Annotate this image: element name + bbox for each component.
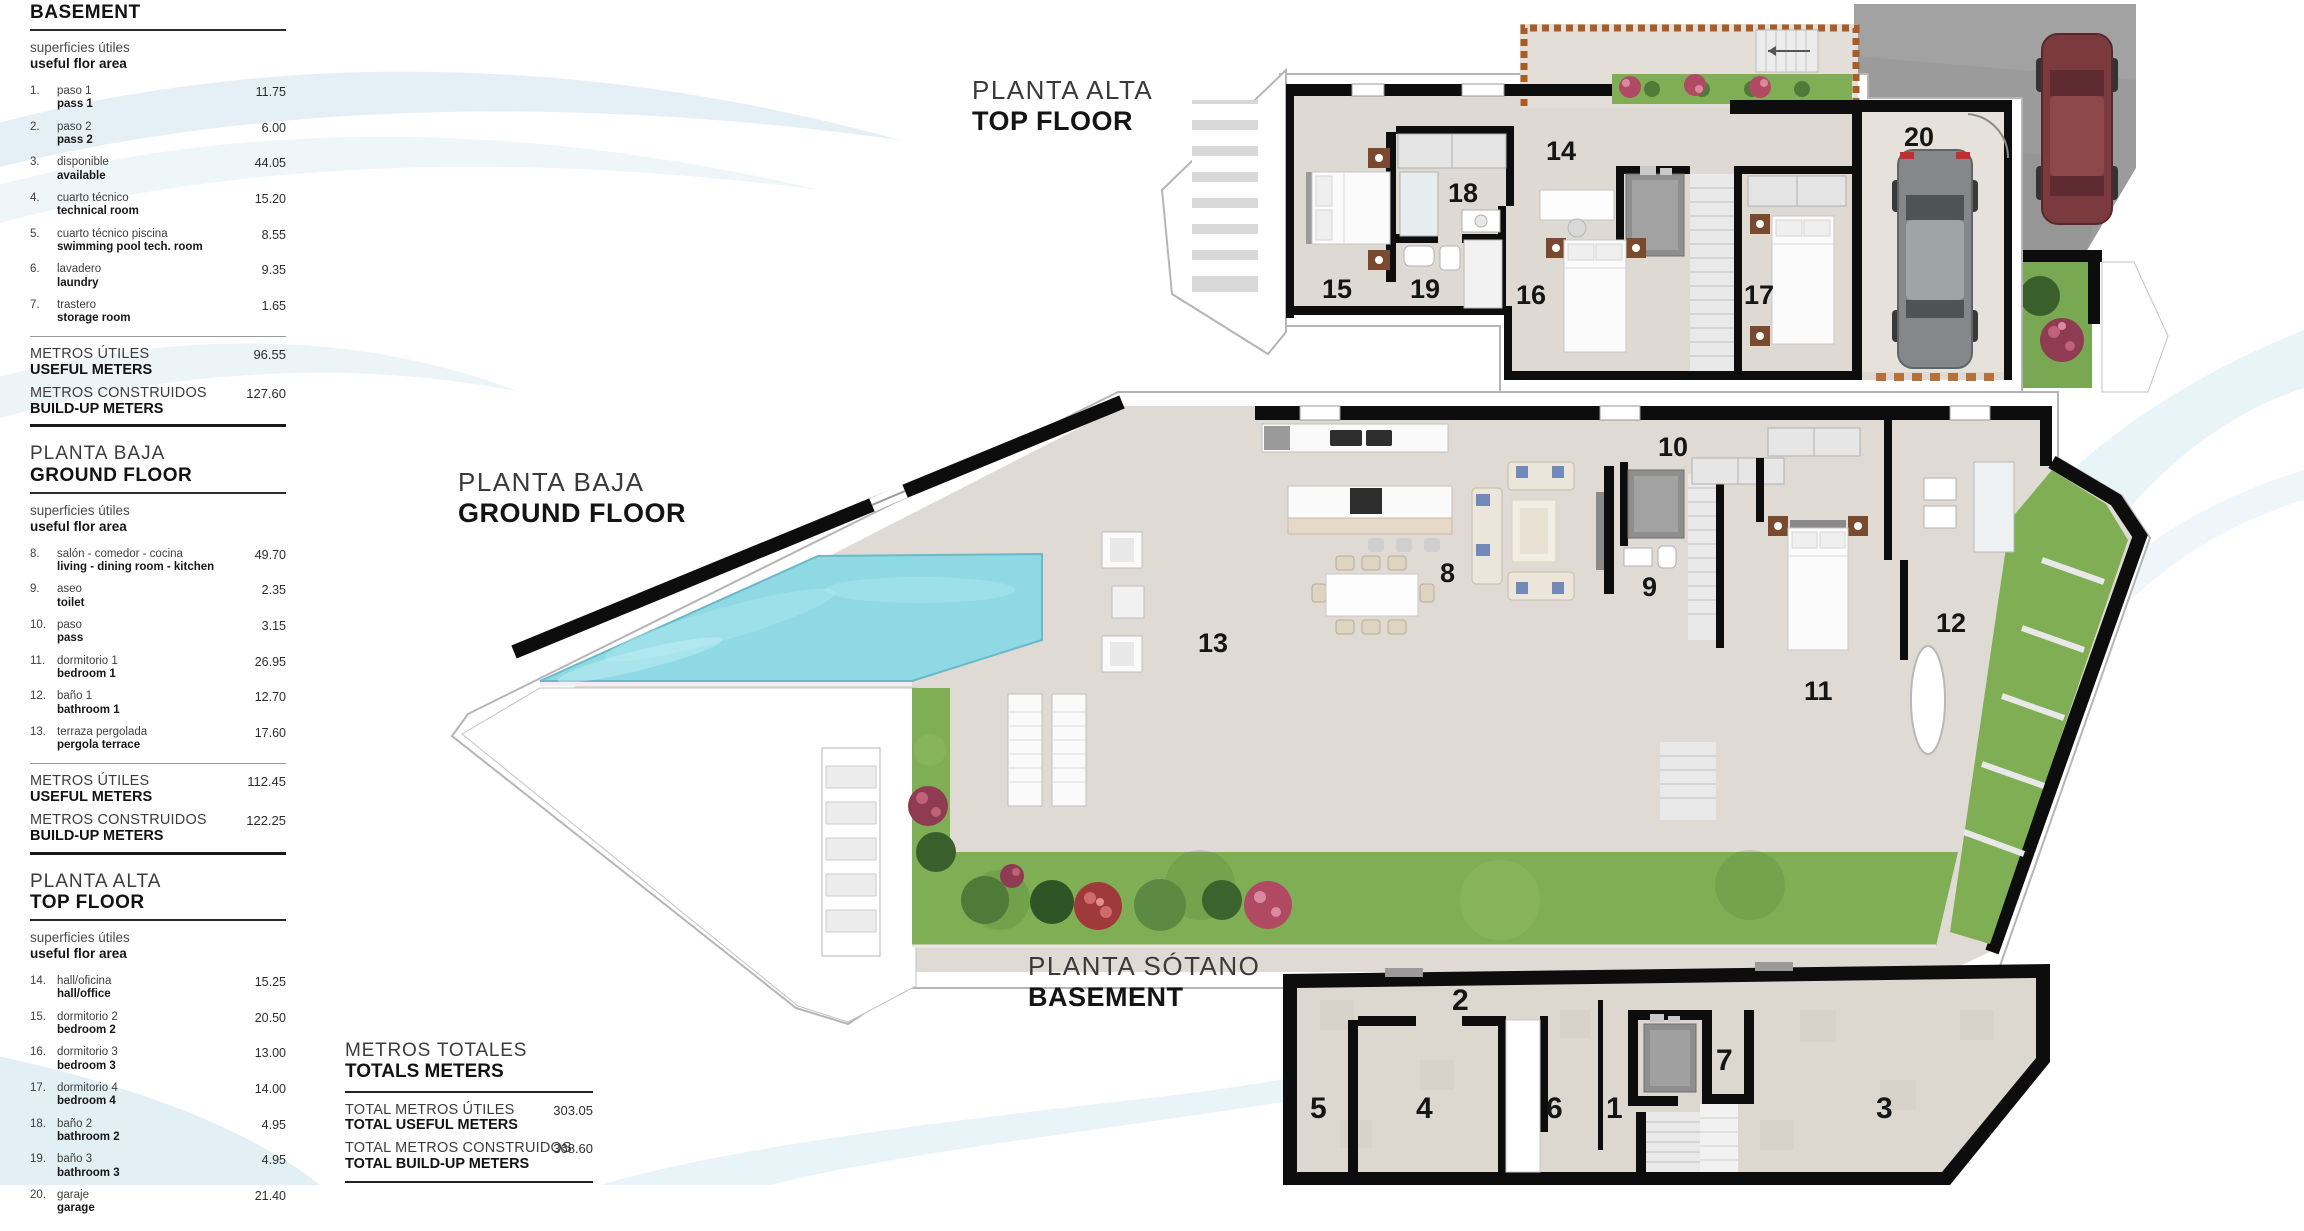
area-row: 3.disponibleavailable44.05 — [30, 156, 286, 183]
sidebar-section-basement: BASEMENT superficies útiles useful flor … — [30, 2, 286, 427]
total-en: TOTAL USEFUL METERS — [345, 1118, 593, 1134]
total-en: BUILD-UP METERS — [30, 829, 286, 845]
row-en: laundry — [57, 277, 230, 290]
row-es: baño 1 — [57, 690, 230, 703]
room-label-13: 13 — [1198, 628, 1228, 658]
ground-floor-title: PLANTA BAJA GROUND FLOOR — [458, 468, 686, 529]
section-heading-es: PLANTA ALTA — [30, 871, 286, 892]
area-row: 8.salón - comedor - cocinaliving - dinin… — [30, 548, 286, 575]
stairs — [1690, 174, 1734, 371]
row-es: paso — [57, 619, 230, 632]
sidebar-section-ground-floor: PLANTA BAJA GROUND FLOOR superficies úti… — [30, 443, 286, 854]
room-label-11: 11 — [1804, 676, 1833, 706]
basement-title-es: PLANTA SÓTANO — [1028, 952, 1260, 982]
top-floor-title-en: TOP FLOOR — [972, 106, 1153, 137]
bs-stairs — [1646, 1104, 1738, 1172]
area-row: 16.dormitorio 3bedroom 313.00 — [30, 1046, 286, 1073]
basement-title-en: BASEMENT — [1028, 982, 1260, 1013]
row-value: 11.75 — [256, 85, 286, 99]
room-label-2: 2 — [1452, 984, 1469, 1017]
room-label-5: 5 — [1310, 1092, 1327, 1125]
row-value: 17.60 — [255, 726, 286, 740]
row-en: storage room — [57, 312, 230, 325]
rule — [30, 919, 286, 921]
row-en: available — [57, 170, 230, 183]
row-es: cuarto técnico piscina — [57, 228, 230, 241]
exterior-stairs — [822, 748, 880, 956]
row-value: 21.40 — [255, 1189, 286, 1203]
section-heading-en: TOP FLOOR — [30, 892, 286, 913]
row-value: 44.05 — [255, 156, 286, 170]
rule — [30, 492, 286, 494]
red-car — [2036, 34, 2118, 224]
row-num: 16. — [30, 1046, 46, 1058]
room-label-12: 12 — [1936, 608, 1966, 638]
row-num: 12. — [30, 690, 46, 702]
row-es: hall/oficina — [57, 975, 230, 988]
room-label-18: 18 — [1448, 178, 1478, 208]
subheading-es: superficies útiles — [30, 503, 286, 519]
total-value: 96.55 — [253, 347, 286, 362]
row-en: pass 2 — [57, 134, 230, 147]
total-useful: METROS ÚTILESUSEFUL METERS112.45 — [30, 774, 286, 806]
row-en: pergola terrace — [57, 739, 230, 752]
total-built: METROS CONSTRUIDOSBUILD-UP METERS122.25 — [30, 813, 286, 845]
row-value: 8.55 — [262, 228, 286, 242]
row-en: toilet — [57, 597, 230, 610]
row-value: 15.20 — [255, 192, 286, 206]
row-num: 17. — [30, 1082, 46, 1094]
total-useful: METROS ÚTILESUSEFUL METERS96.55 — [30, 347, 286, 379]
row-es: dormitorio 2 — [57, 1011, 230, 1024]
row-num: 7. — [30, 299, 40, 311]
rule — [30, 336, 286, 337]
section-heading-en: GROUND FLOOR — [30, 465, 286, 486]
row-value: 15.25 — [255, 975, 286, 989]
row-es: paso 1 — [57, 85, 230, 98]
item-list: 1.paso 1pass 111.75 2.paso 2pass 26.00 3… — [30, 85, 286, 326]
area-row: 2.paso 2pass 26.00 — [30, 121, 286, 148]
area-row: 1.paso 1pass 111.75 — [30, 85, 286, 112]
top-floor-title-es: PLANTA ALTA — [972, 76, 1153, 106]
basement-plan: 5 4 2 6 1 7 3 — [1275, 950, 2075, 1185]
row-es: terraza pergolada — [57, 726, 230, 739]
subheading-en: useful flor area — [30, 56, 286, 72]
row-value: 4.95 — [262, 1153, 286, 1167]
room-label-20: 20 — [1904, 122, 1934, 152]
row-num: 10. — [30, 619, 46, 631]
row-en: bathroom 2 — [57, 1131, 230, 1144]
section-heading: BASEMENT — [30, 2, 286, 23]
row-es: dormitorio 1 — [57, 655, 230, 668]
area-row: 11.dormitorio 1bedroom 126.95 — [30, 655, 286, 682]
top-floor-plan: 14 15 16 17 18 19 20 — [1150, 0, 2170, 400]
row-en: pass — [57, 632, 230, 645]
area-row: 9.aseotoilet2.35 — [30, 583, 286, 610]
ground-floor-title-en: GROUND FLOOR — [458, 498, 686, 529]
total-en: USEFUL METERS — [30, 363, 286, 379]
area-row: 5.cuarto técnico piscinaswimming pool te… — [30, 228, 286, 255]
row-value: 14.00 — [255, 1082, 286, 1096]
room-label-1: 1 — [1606, 1092, 1623, 1125]
row-num: 15. — [30, 1011, 46, 1023]
row-value: 20.50 — [255, 1011, 286, 1025]
row-en: hall/office — [57, 988, 230, 1001]
bs-elevator — [1644, 1014, 1696, 1092]
total-en: TOTAL BUILD-UP METERS — [345, 1157, 593, 1173]
room-label-16: 16 — [1516, 280, 1546, 310]
row-num: 13. — [30, 726, 46, 738]
row-num: 2. — [30, 121, 40, 133]
row-num: 14. — [30, 975, 46, 987]
room-label-10: 10 — [1658, 432, 1688, 462]
floorplan-sheet: 14 15 16 17 18 19 20 — [0, 0, 2304, 1185]
row-value: 6.00 — [262, 121, 286, 135]
area-row: 13.terraza pergoladapergola terrace17.60 — [30, 726, 286, 753]
row-es: dormitorio 4 — [57, 1082, 230, 1095]
row-en: bathroom 3 — [57, 1167, 230, 1180]
total-en: USEFUL METERS — [30, 790, 286, 806]
row-es: baño 2 — [57, 1118, 230, 1131]
rule — [30, 29, 286, 31]
rule — [30, 424, 286, 427]
row-num: 3. — [30, 156, 40, 168]
basement-title: PLANTA SÓTANO BASEMENT — [1028, 952, 1260, 1013]
area-row: 18.baño 2bathroom 24.95 — [30, 1118, 286, 1145]
row-value: 1.65 — [262, 299, 286, 313]
row-value: 9.35 — [262, 263, 286, 277]
area-row: 19.baño 3bathroom 34.95 — [30, 1153, 286, 1180]
row-en: swimming pool tech. room — [57, 241, 230, 254]
room-label-19: 19 — [1410, 274, 1440, 304]
area-row: 20.garajegarage21.40 — [30, 1189, 286, 1216]
row-es: salón - comedor - cocina — [57, 548, 230, 561]
measurements-sidebar: BASEMENT superficies útiles useful flor … — [30, 2, 286, 1231]
bs-corridor — [1506, 1020, 1540, 1172]
room-label-7: 7 — [1716, 1044, 1733, 1077]
area-row: 10.pasopass3.15 — [30, 619, 286, 646]
area-row: 12.baño 1bathroom 112.70 — [30, 690, 286, 717]
area-row: 4.cuarto técnicotechnical room15.20 — [30, 192, 286, 219]
row-es: lavadero — [57, 263, 230, 276]
item-list: 14.hall/oficinahall/office15.25 15.dormi… — [30, 975, 286, 1216]
row-num: 20. — [30, 1189, 46, 1201]
row-en: living - dining room - kitchen — [57, 561, 230, 574]
area-row: 6.lavaderolaundry9.35 — [30, 263, 286, 290]
room-label-14: 14 — [1546, 136, 1576, 166]
subheading-en: useful flor area — [30, 946, 286, 962]
row-en: bedroom 4 — [57, 1095, 230, 1108]
row-es: trastero — [57, 299, 230, 312]
room-label-4: 4 — [1416, 1092, 1433, 1125]
top-floor-title: PLANTA ALTA TOP FLOOR — [972, 76, 1153, 137]
totals-block: METROS TOTALES TOTALS METERS TOTAL METRO… — [345, 1040, 593, 1193]
row-en: bedroom 3 — [57, 1060, 230, 1073]
row-en: bathroom 1 — [57, 704, 230, 717]
row-en: technical room — [57, 205, 230, 218]
sidebar-section-top-floor: PLANTA ALTA TOP FLOOR superficies útiles… — [30, 871, 286, 1216]
subheading-es: superficies útiles — [30, 40, 286, 56]
rule — [30, 763, 286, 764]
row-value: 13.00 — [255, 1046, 286, 1060]
row-en: bedroom 1 — [57, 668, 230, 681]
total-value: 122.25 — [246, 813, 286, 828]
row-value: 49.70 — [255, 548, 286, 562]
total-es: METROS ÚTILES — [30, 347, 286, 363]
grand-total-built: TOTAL METROS CONSTRUIDOS TOTAL BUILD-UP … — [345, 1141, 593, 1173]
row-es: baño 3 — [57, 1153, 230, 1166]
totals-title-es: METROS TOTALES — [345, 1040, 593, 1061]
subheading-es: superficies útiles — [30, 930, 286, 946]
kitchen — [1262, 424, 1452, 552]
row-es: aseo — [57, 583, 230, 596]
row-en: bedroom 2 — [57, 1024, 230, 1037]
rule — [345, 1091, 593, 1093]
row-en: pass 1 — [57, 98, 230, 111]
rule — [30, 852, 286, 855]
area-row: 14.hall/oficinahall/office15.25 — [30, 975, 286, 1002]
room-label-15: 15 — [1322, 274, 1352, 304]
row-num: 8. — [30, 548, 40, 560]
gray-car — [1892, 150, 1978, 368]
row-value: 2.35 — [262, 583, 286, 597]
row-en: garage — [57, 1202, 230, 1215]
grand-total-useful: TOTAL METROS ÚTILES TOTAL USEFUL METERS … — [345, 1103, 593, 1135]
row-value: 26.95 — [255, 655, 286, 669]
row-value: 12.70 — [255, 690, 286, 704]
area-row: 17.dormitorio 4bedroom 414.00 — [30, 1082, 286, 1109]
row-num: 19. — [30, 1153, 46, 1165]
ground-floor-title-es: PLANTA BAJA — [458, 468, 686, 498]
row-num: 6. — [30, 263, 40, 275]
row-es: dormitorio 3 — [57, 1046, 230, 1059]
room-label-9: 9 — [1642, 572, 1657, 602]
room-label-6: 6 — [1546, 1092, 1563, 1125]
pergola-louvers — [1192, 100, 1258, 292]
row-value: 3.15 — [262, 619, 286, 633]
total-value: 127.60 — [246, 386, 286, 401]
total-value: 368.60 — [553, 1141, 593, 1156]
item-list: 8.salón - comedor - cocinaliving - dinin… — [30, 548, 286, 753]
row-num: 11. — [30, 655, 45, 667]
row-es: garaje — [57, 1189, 230, 1202]
room-label-8: 8 — [1440, 558, 1455, 588]
totals-title-en: TOTALS METERS — [345, 1061, 593, 1082]
area-row: 15.dormitorio 2bedroom 220.50 — [30, 1011, 286, 1038]
row-es: disponible — [57, 156, 230, 169]
total-value: 112.45 — [247, 774, 286, 789]
garden-corner — [2006, 250, 2168, 392]
rule — [345, 1181, 593, 1183]
row-es: cuarto técnico — [57, 192, 230, 205]
row-num: 1. — [30, 85, 40, 97]
row-num: 18. — [30, 1118, 46, 1130]
ground-floor-plan: 8 9 10 11 12 13 — [450, 385, 2180, 1040]
row-num: 4. — [30, 192, 40, 204]
total-en: BUILD-UP METERS — [30, 402, 286, 418]
subheading-en: useful flor area — [30, 519, 286, 535]
row-value: 4.95 — [262, 1118, 286, 1132]
room-label-17: 17 — [1744, 280, 1774, 310]
room-label-3: 3 — [1876, 1092, 1893, 1125]
row-num: 5. — [30, 228, 40, 240]
area-row: 7.trasterostorage room1.65 — [30, 299, 286, 326]
row-num: 9. — [30, 583, 40, 595]
total-built: METROS CONSTRUIDOSBUILD-UP METERS127.60 — [30, 386, 286, 418]
row-es: paso 2 — [57, 121, 230, 134]
total-value: 303.05 — [553, 1103, 593, 1118]
section-heading-es: PLANTA BAJA — [30, 443, 286, 464]
